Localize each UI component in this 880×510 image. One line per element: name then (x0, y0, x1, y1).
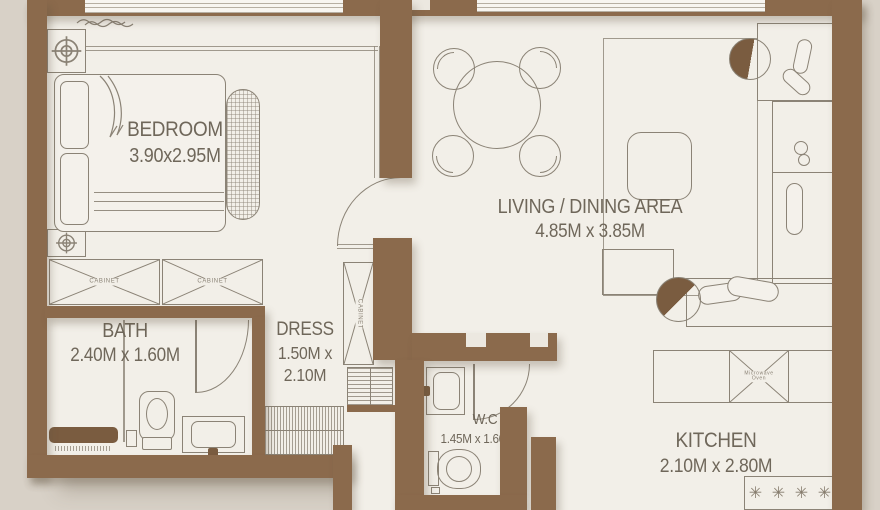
living-dims: 4.85M x 3.85M (500, 222, 680, 242)
shoe-shelf-divider (370, 368, 371, 405)
sofa-pillow-3 (786, 183, 803, 235)
kitchen-label: KITCHEN (644, 430, 788, 452)
bedroom-window (85, 0, 343, 13)
ac-vent-box-top (47, 29, 86, 73)
burner-icon: ✳ (818, 483, 831, 503)
side-table-bottom (656, 277, 701, 322)
wall-bedroom-living (380, 0, 412, 178)
wall-shoe-shelf-base (347, 405, 395, 412)
crosshair-icon (48, 30, 85, 72)
bath-sink-basin (191, 421, 236, 448)
sofa-cup-2 (798, 154, 810, 166)
kitchen-dims: 2.10M x 2.80M (639, 456, 794, 476)
dress-dims-line2: 2.10M (260, 366, 350, 384)
dining-chair-bottom-right (519, 135, 561, 177)
wall-entry-left (333, 445, 352, 510)
wall-wc-right (500, 407, 527, 495)
wc-toilet-bowl-inner (446, 456, 472, 482)
floor-plan: BEDROOM 3.90x2.95M CABINET CABINET LIVIN… (0, 0, 880, 510)
dress-dims-line1: 1.50M x (260, 344, 350, 362)
bathtub-deck (55, 446, 111, 451)
floor-pouf (627, 132, 692, 200)
bedroom-ceiling-line (50, 46, 378, 51)
wc-drain (431, 487, 440, 494)
wardrobe-left-label: CABINET (87, 279, 121, 286)
bath-toilet-bowl (146, 398, 168, 430)
sofa-cup-1 (794, 141, 808, 155)
bed-blanket-lines (94, 192, 224, 214)
wall-wc-notch-1 (466, 333, 486, 347)
microwave-box: Microwave Oven (729, 350, 789, 403)
wall-wc-bottom (395, 495, 527, 510)
wall-bedroom-bath (45, 306, 265, 318)
living-window (477, 0, 765, 12)
sofa-right-low (772, 172, 835, 284)
bathtub (49, 427, 118, 443)
bath-dims: 2.40M x 1.60M (53, 346, 197, 366)
wall-kitchen-left (531, 437, 556, 510)
bedroom-dims: 3.90x2.95M (103, 146, 247, 167)
living-label: LIVING / DINING AREA (482, 197, 698, 218)
crosshair-icon (48, 230, 85, 256)
wall-bath-dress (252, 317, 265, 455)
wc-sink-basin (433, 372, 460, 410)
wall-bath-bottom (27, 455, 352, 478)
burner-icon: ✳ (795, 483, 808, 503)
dress-shelf-bottom (264, 430, 344, 455)
bed-pillow-top (60, 81, 89, 149)
stove-burners: ✳ ✳ ✳ ✳ (744, 476, 836, 510)
bath-sprayer-box (126, 430, 137, 447)
microwave-label: Microwave Oven (739, 371, 779, 383)
wall-wc-left (395, 360, 424, 510)
wall-left (27, 0, 47, 478)
bedroom-label: BEDROOM (103, 119, 247, 141)
dining-chair-bottom-left (432, 135, 474, 177)
shoe-shelf (347, 367, 393, 406)
dress-cabinet-label: CABINET (355, 296, 362, 330)
bath-toilet-tank (142, 437, 172, 450)
burner-icon: ✳ (749, 483, 762, 503)
dress-label: DRESS (260, 320, 350, 340)
wall-wc-notch-2 (530, 333, 548, 347)
wardrobe-left: CABINET (49, 259, 160, 305)
wardrobe-right-label: CABINET (195, 279, 229, 286)
wall-hallway (373, 238, 412, 360)
bath-label: BATH (67, 321, 184, 342)
wall-right (832, 0, 862, 510)
dining-chair-top-right (519, 47, 561, 89)
curtain-squiggle (75, 16, 139, 29)
burner-icon: ✳ (772, 483, 785, 503)
ac-vent-box-bottom (47, 229, 86, 257)
dining-chair-top-left (433, 48, 475, 90)
dress-shelf-top (264, 406, 344, 431)
wardrobe-right: CABINET (162, 259, 263, 305)
bed-pillow-bottom (60, 153, 89, 225)
